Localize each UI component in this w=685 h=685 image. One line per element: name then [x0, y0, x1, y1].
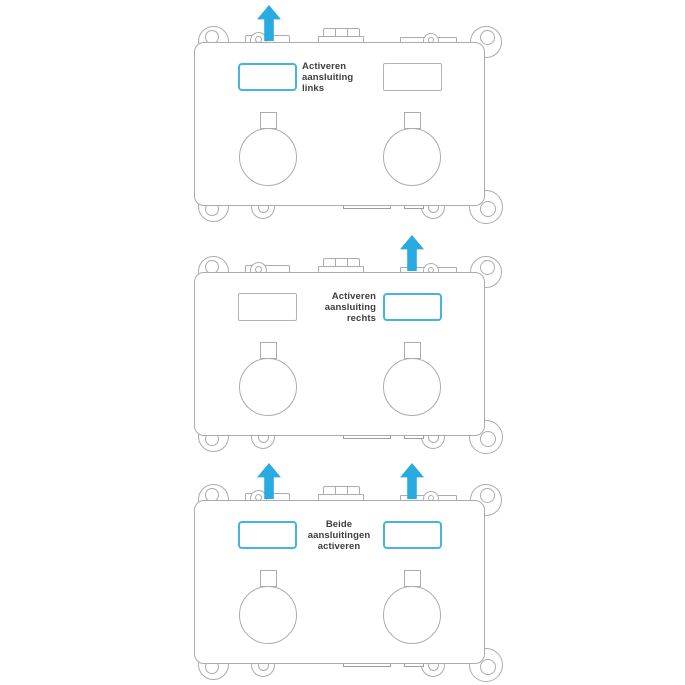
- connection-window-left: [238, 293, 297, 321]
- top-connector-nut: [323, 28, 360, 37]
- label-line: rechts: [298, 314, 376, 325]
- up-arrow-right-icon: [400, 235, 424, 271]
- top-connector-nut: [323, 258, 360, 267]
- connection-window-left: [238, 63, 297, 91]
- installation-instruction-diagram: Activeren aansluiting links: [0, 0, 685, 685]
- label-line: links: [302, 84, 380, 95]
- connection-window-right: [383, 63, 442, 91]
- diagram-activate-both: Beide aansluitingen activeren: [0, 458, 685, 685]
- connection-window-right: [383, 521, 442, 549]
- valve-knob-right: [383, 586, 441, 644]
- mount-ear-top-right-hole: [480, 488, 495, 503]
- knob-stem-right: [404, 112, 421, 129]
- diagram-activate-right: Activeren aansluiting rechts: [0, 230, 685, 460]
- valve-knob-left: [239, 358, 297, 416]
- mount-ear-bottom-right-hole: [480, 431, 496, 447]
- mount-ear-top-right-hole: [480, 260, 495, 275]
- connection-window-left: [238, 521, 297, 549]
- valve-knob-left: [239, 128, 297, 186]
- knob-stem-right: [404, 570, 421, 587]
- knob-stem-left: [260, 112, 277, 129]
- instruction-label: Activeren aansluiting rechts: [298, 292, 380, 324]
- up-arrow-right-icon: [400, 463, 424, 499]
- valve-knob-right: [383, 128, 441, 186]
- instruction-label: Beide aansluitingen activeren: [298, 520, 380, 552]
- valve-knob-right: [383, 358, 441, 416]
- mount-ear-bottom-right-hole: [480, 201, 496, 217]
- knob-stem-left: [260, 570, 277, 587]
- mount-ear-bottom-right-hole: [480, 659, 496, 675]
- label-line: aansluiting: [302, 73, 380, 84]
- connection-window-right: [383, 293, 442, 321]
- knob-stem-left: [260, 342, 277, 359]
- valve-knob-left: [239, 586, 297, 644]
- label-line: activeren: [298, 542, 380, 553]
- label-line: aansluiting: [298, 303, 376, 314]
- top-connector-nut: [323, 486, 360, 495]
- label-line: aansluitingen: [298, 531, 380, 542]
- diagram-activate-left: Activeren aansluiting links: [0, 0, 685, 230]
- knob-stem-right: [404, 342, 421, 359]
- instruction-label: Activeren aansluiting links: [298, 62, 380, 94]
- mount-ear-top-right-hole: [480, 30, 495, 45]
